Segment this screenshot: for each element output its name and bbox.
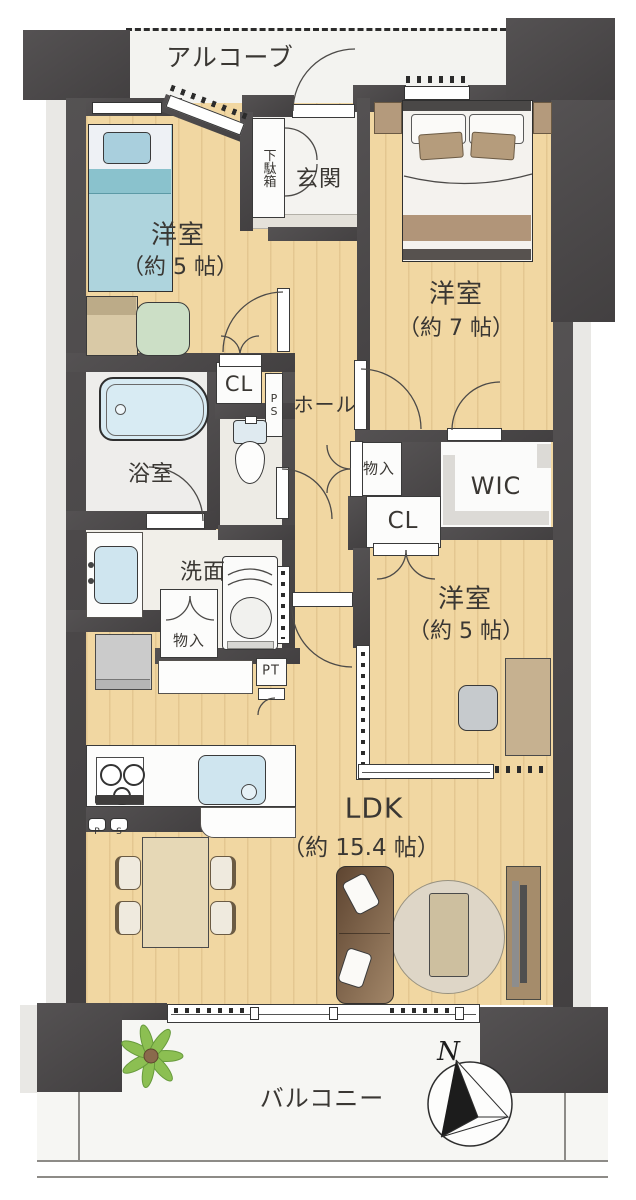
wall-genkan-bottom — [268, 227, 370, 241]
closet-middle-door — [373, 543, 439, 556]
tv-screen — [520, 885, 527, 983]
partition-track-line — [362, 772, 490, 773]
dining-chair-1 — [115, 856, 141, 890]
wall-top-right-block — [506, 18, 615, 103]
wall-right-upper-block — [551, 100, 615, 322]
balcony-edge-line-1 — [37, 1160, 608, 1162]
double-bed-blanket-band — [403, 215, 531, 241]
pipe-space-p-label: P — [94, 827, 99, 837]
counter-below-storage — [158, 660, 253, 694]
wall-cl-left — [348, 496, 366, 550]
nightstand-right — [533, 102, 552, 134]
vanity-faucet-2 — [88, 578, 94, 584]
storage-hall-label: 物入 — [363, 458, 395, 479]
balcony-door-handle-2 — [329, 1007, 338, 1020]
partition-window-hatch — [495, 766, 543, 773]
washroom-door-hatch — [281, 571, 285, 639]
wall-bottom-right-block — [480, 1007, 608, 1093]
bedroom2-window-hatch — [406, 76, 470, 83]
bedroom2-size: （約 7 帖） — [398, 310, 514, 342]
exterior-shadow-right — [573, 322, 591, 1007]
dining-table — [142, 837, 209, 948]
single-bed-band — [89, 169, 171, 194]
balcony-divider-left — [78, 1092, 80, 1160]
double-bed — [402, 100, 533, 262]
ldk-size: （約 15.4 帖） — [282, 828, 440, 862]
washing-machine-drum — [230, 597, 272, 639]
double-bed-headboard — [403, 101, 531, 111]
refrigerator — [95, 634, 152, 690]
floor-plan: 下駄箱 CL PS 物入 CL WIC 物入 PT P S — [0, 0, 636, 1200]
stove-burner-1 — [100, 764, 122, 786]
washing-machine — [222, 556, 278, 650]
washing-machine-panel — [227, 641, 274, 649]
nightstand-left — [374, 102, 402, 134]
chair-bedroom3 — [458, 685, 498, 731]
bedroom2-label: 洋室 — [429, 274, 483, 311]
refrigerator-base — [96, 679, 150, 689]
balcony-door-handle-1 — [250, 1007, 259, 1020]
balcony-sliding-door — [167, 1004, 480, 1023]
partition-frame-hatch — [361, 652, 365, 774]
pipe-space-s-badge: S — [110, 818, 128, 831]
washroom-sliding-door — [277, 566, 290, 644]
entrance-door — [292, 104, 355, 118]
desk-bedroom3 — [505, 658, 551, 756]
bedroom1-window — [92, 102, 162, 114]
pipe-space-s-label: S — [116, 827, 122, 837]
balcony-door-hatch-left — [174, 1008, 247, 1013]
compass-north-label: N — [437, 1037, 461, 1067]
balcony-divider-right — [564, 1093, 566, 1160]
double-bed-cushion-left — [418, 131, 464, 160]
wic-shelf-right — [537, 444, 551, 468]
bedroom2-window — [404, 86, 470, 100]
tv-board-panel — [512, 881, 519, 987]
wall-left — [66, 98, 86, 1008]
bedroom3-partition-frame — [356, 645, 370, 780]
stove-front-grill — [95, 795, 144, 804]
vanity-faucet — [88, 562, 94, 568]
closet-upper-door — [219, 354, 262, 367]
balcony-door-hatch-right — [390, 1008, 454, 1013]
shoe-cabinet-label: 下駄箱 — [259, 149, 278, 188]
bathtub — [99, 377, 209, 441]
alcove-label: アルコーブ — [166, 38, 294, 74]
stove-burner-2 — [123, 764, 145, 786]
wic-shelf-bottom — [443, 511, 549, 525]
balcony-door-track-line — [171, 1014, 476, 1015]
wall-toilet-bottom — [218, 525, 295, 540]
bedroom1-door — [277, 288, 290, 352]
dining-chair-2 — [115, 901, 141, 935]
balcony-door-handle-3 — [455, 1007, 464, 1020]
pipe-shaft-label: PS — [268, 392, 281, 418]
bedroom1-label: 洋室 — [151, 215, 205, 252]
wall-top-left-block — [23, 30, 130, 100]
closet-middle-label: CL — [388, 508, 419, 534]
tv-board — [506, 866, 541, 1000]
chair-bedroom1 — [136, 302, 190, 356]
wall-right — [553, 322, 573, 1007]
pipe-trunk-door — [258, 688, 285, 700]
exterior-shadow-left — [46, 98, 66, 1010]
wall-wic-bottom — [435, 527, 553, 540]
desk-bedroom1-top — [87, 297, 136, 315]
balcony-label: バルコニー — [260, 1079, 385, 1114]
storage-washroom-label: 物入 — [173, 630, 205, 651]
wall-bedroom3-west — [353, 548, 370, 648]
storage-hall-door — [350, 441, 363, 497]
genkan-label: 玄関 — [296, 161, 342, 193]
bath-door — [146, 513, 205, 529]
washroom-label: 洗面 — [180, 554, 226, 586]
toilet-button — [245, 416, 257, 424]
single-bed-pillow — [103, 132, 151, 164]
sofa-seat-divider — [339, 933, 390, 934]
wic-label: WIC — [471, 472, 522, 500]
vanity-sink — [94, 546, 138, 604]
bedroom3-size: （約 5 帖） — [408, 613, 524, 645]
ldk-door — [292, 592, 353, 607]
balcony-edge-line-2 — [37, 1176, 608, 1178]
hall-label: ホール — [294, 389, 357, 418]
pipe-trunk-label: PT — [262, 664, 280, 679]
bedroom3-label: 洋室 — [438, 579, 492, 616]
closet-upper-label: CL — [225, 372, 253, 396]
bath-label: 浴室 — [128, 456, 174, 488]
ldk-label: LDK — [345, 792, 404, 825]
coffee-table — [429, 893, 469, 977]
pipe-space-p-badge: P — [88, 818, 106, 831]
kitchen-sink — [198, 755, 266, 805]
dining-chair-4 — [210, 901, 236, 935]
bedroom1-size: （約 5 帖） — [122, 249, 238, 281]
exterior-shadow-bottom-left — [20, 1005, 37, 1093]
wall-bottom-left-block — [37, 1003, 122, 1092]
double-bed-foot — [403, 249, 531, 260]
desk-bedroom1 — [86, 296, 138, 356]
double-bed-cushion-right — [470, 131, 516, 160]
sink-drain — [241, 784, 257, 800]
toilet-door — [276, 467, 289, 519]
bedroom3-sliding-partition — [358, 764, 494, 779]
wic-door — [447, 428, 502, 441]
dining-chair-3 — [210, 856, 236, 890]
bathtub-drain — [115, 404, 126, 415]
